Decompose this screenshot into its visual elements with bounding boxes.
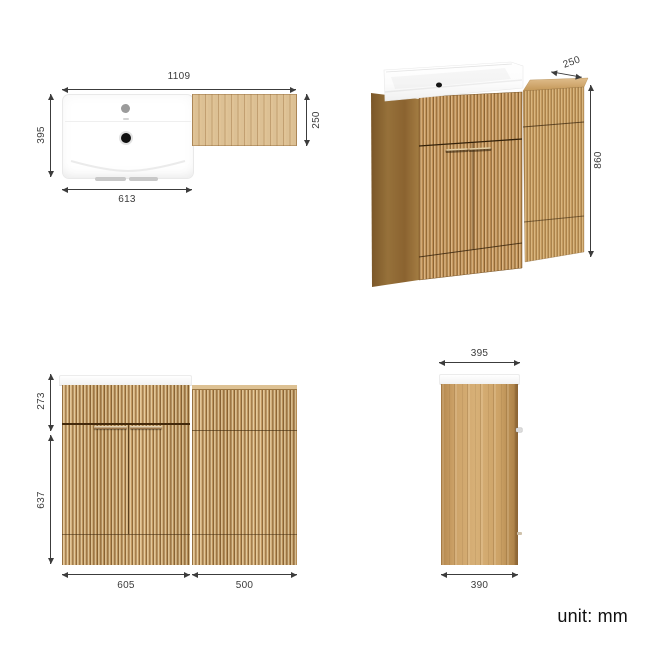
basin-front-bar-left	[95, 177, 126, 181]
drain-hole	[121, 133, 131, 143]
basin-contour	[69, 157, 187, 173]
front-vanity-kick-seam	[62, 534, 190, 535]
top-view-wc-depth-dimline	[306, 94, 307, 146]
side-base-depth-label: 390	[441, 580, 518, 592]
faucet-hole	[121, 104, 130, 113]
faucet-hole-3d	[436, 83, 442, 88]
perspective-view-render	[365, 55, 605, 305]
front-wc-width-dimline	[192, 574, 297, 575]
side-panel-edge	[515, 384, 518, 565]
wc-unit-front-panel	[523, 87, 584, 262]
front-lower-height-label: 637	[36, 485, 48, 515]
front-view-wc-body	[192, 385, 297, 565]
wc-unit-top-view	[192, 94, 297, 146]
front-door-handle-right	[130, 426, 162, 429]
front-upper-height-dimline	[50, 374, 51, 431]
side-handle-upper	[516, 428, 522, 432]
front-wc-top-cap	[192, 385, 297, 390]
front-vanity-width-dimline	[62, 574, 190, 575]
top-view-overall-width-label: 1109	[62, 71, 296, 83]
side-top-depth-label: 395	[439, 348, 520, 360]
top-view-depth-label: 395	[36, 120, 48, 150]
top-view-overall-width-dimline	[62, 89, 296, 90]
front-wc-upper-seam	[192, 430, 297, 431]
front-vanity-door-top-seam	[62, 423, 190, 425]
basin-front-bar-right	[129, 177, 158, 181]
front-upper-height-label: 273	[36, 386, 48, 416]
door-handle-right	[470, 148, 490, 149]
basin-top-view	[62, 94, 194, 179]
perspective-height-label: 860	[593, 145, 605, 175]
front-vanity-width-label: 605	[62, 580, 190, 592]
front-wc-width-label: 500	[192, 580, 297, 592]
top-view-basin-width-dimline	[62, 189, 192, 190]
overflow-slot	[123, 118, 129, 120]
perspective-height-dimline	[590, 85, 591, 257]
vanity-front-panel	[419, 92, 522, 280]
top-view-basin-width-label: 613	[62, 194, 192, 206]
basin-ledge-line	[65, 121, 191, 122]
product-dimension-diagram: 1109 395 250 613	[0, 0, 650, 650]
side-top-depth-dimline	[439, 362, 520, 363]
front-door-split	[128, 424, 129, 534]
side-handle-lower	[517, 532, 522, 535]
door-handle-left	[447, 149, 467, 150]
unit-note: unit: mm	[557, 606, 628, 627]
front-door-handle-left	[94, 426, 127, 429]
front-lower-height-dimline	[50, 435, 51, 564]
front-view-vanity-body	[62, 385, 190, 565]
side-view-panel	[441, 384, 518, 565]
vanity-side-panel	[371, 93, 419, 287]
top-view-wc-depth-label: 250	[311, 105, 323, 135]
front-wc-kick-seam	[192, 534, 297, 535]
top-view-depth-dimline	[50, 94, 51, 177]
side-base-depth-dimline	[441, 574, 518, 575]
